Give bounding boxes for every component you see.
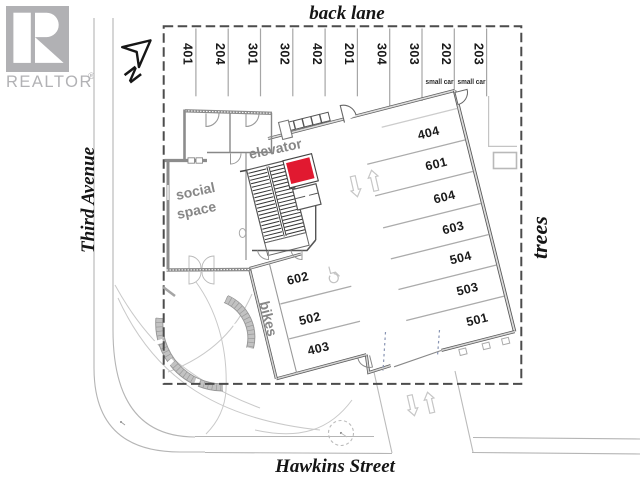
- svg-text:202: 202: [439, 43, 453, 65]
- svg-text:301: 301: [245, 43, 259, 65]
- svg-text:304: 304: [375, 43, 389, 65]
- svg-text:303: 303: [407, 43, 421, 65]
- svg-text:small car: small car: [426, 77, 454, 86]
- svg-text:203: 203: [471, 43, 485, 65]
- svg-text:REALTOR: REALTOR: [6, 73, 93, 91]
- svg-text:302: 302: [278, 43, 292, 65]
- svg-text:401: 401: [181, 43, 195, 65]
- svg-text:trees: trees: [527, 216, 552, 259]
- svg-text:small car: small car: [458, 77, 486, 86]
- svg-text:Third Avenue: Third Avenue: [78, 146, 99, 253]
- svg-text:®: ®: [88, 71, 95, 81]
- svg-text:201: 201: [342, 43, 356, 65]
- svg-text:402: 402: [310, 43, 324, 65]
- svg-text:204: 204: [213, 43, 227, 65]
- svg-text:Hawkins Street: Hawkins Street: [274, 456, 396, 477]
- svg-text:back lane: back lane: [309, 3, 385, 24]
